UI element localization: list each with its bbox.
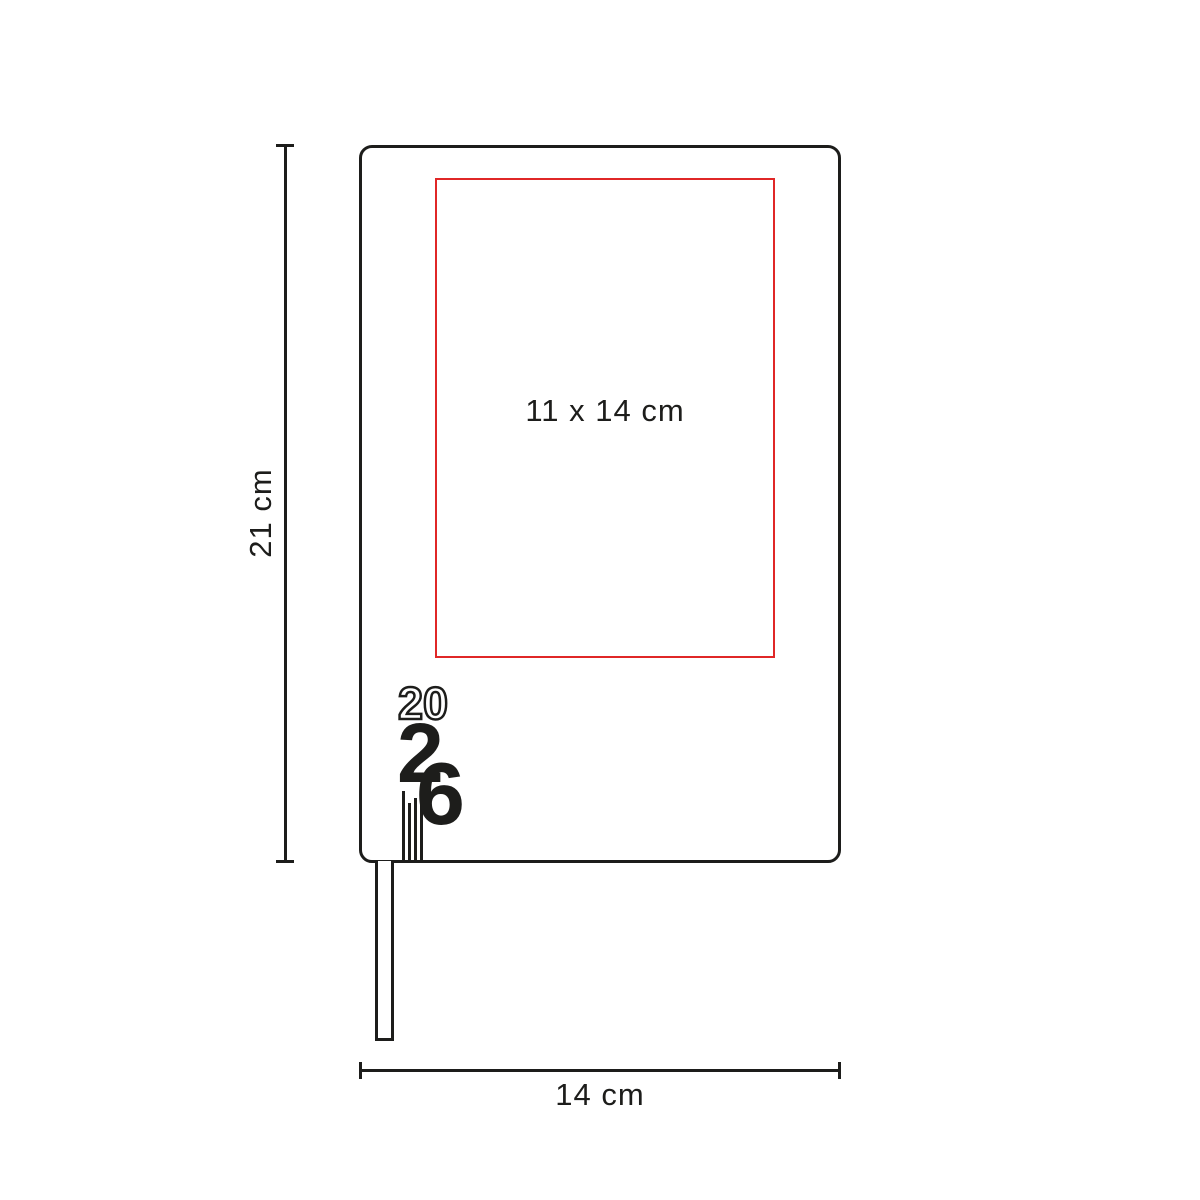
width-dimension-line: [359, 1069, 841, 1072]
print-area: 11 x 14 cm: [435, 178, 775, 658]
height-dimension-line: [284, 145, 287, 862]
logo-stripe: [402, 791, 405, 861]
height-dimension-cap-bottom: [276, 860, 294, 863]
width-dimension-cap-right: [838, 1062, 841, 1079]
bookmark-ribbon: [375, 861, 394, 1041]
diagram-canvas: 21 cm 11 x 14 cm 20 2 6 14 cm: [0, 0, 1200, 1200]
height-dimension-cap-top: [276, 144, 294, 147]
logo-digit-2: 2: [397, 711, 444, 795]
width-dimension-label: 14 cm: [500, 1077, 700, 1113]
print-area-label: 11 x 14 cm: [525, 393, 684, 429]
height-dimension-label: 21 cm: [243, 433, 275, 593]
width-dimension-cap-left: [359, 1062, 362, 1079]
notebook-outline: 11 x 14 cm 20 2 6: [359, 145, 841, 863]
logo-stripe: [408, 803, 411, 861]
